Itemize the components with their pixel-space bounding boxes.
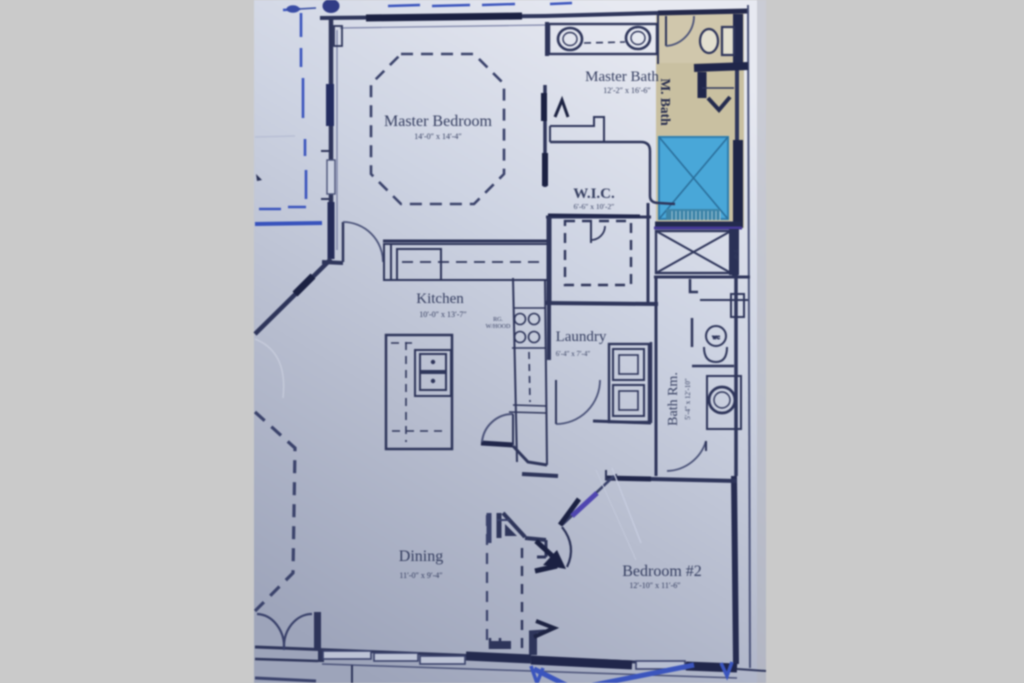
svg-text:6′-6″ x 10′-2″: 6′-6″ x 10′-2″	[574, 202, 615, 211]
svg-text:6′-4″ x 7′-4″: 6′-4″ x 7′-4″	[556, 350, 591, 358]
svg-text:Dining: Dining	[399, 548, 443, 565]
svg-text:Master Bedroom: Master Bedroom	[384, 113, 493, 130]
svg-text:W/HOOD: W/HOOD	[486, 324, 511, 330]
svg-text:RG.: RG.	[493, 317, 503, 323]
svg-text:12′-10″ x 11′-6″: 12′-10″ x 11′-6″	[629, 581, 680, 590]
svg-text:M. Bath: M. Bath	[658, 78, 673, 126]
svg-text:5′-4″ x 12′-10″: 5′-4″ x 12′-10″	[684, 378, 692, 420]
svg-text:wc: wc	[712, 334, 720, 341]
svg-text:Laundry: Laundry	[556, 329, 607, 345]
svg-text:10′-0″ x 13′-7″: 10′-0″ x 13′-7″	[419, 310, 467, 319]
svg-text:Master Bath: Master Bath	[585, 69, 659, 85]
svg-text:14′-0″ x 14′-4″: 14′-0″ x 14′-4″	[414, 132, 462, 141]
svg-text:Bath Rm.: Bath Rm.	[666, 372, 681, 426]
svg-text:Bedroom #2: Bedroom #2	[622, 563, 702, 580]
svg-text:3′-0″: 3′-0″	[732, 249, 738, 261]
svg-text:12′-2″ x 16′-6″: 12′-2″ x 16′-6″	[603, 86, 651, 95]
svg-text:W.I.C.: W.I.C.	[573, 186, 615, 202]
svg-text:Kitchen: Kitchen	[416, 291, 464, 307]
svg-text:11′-0″ x 9′-4″: 11′-0″ x 9′-4″	[399, 571, 442, 580]
